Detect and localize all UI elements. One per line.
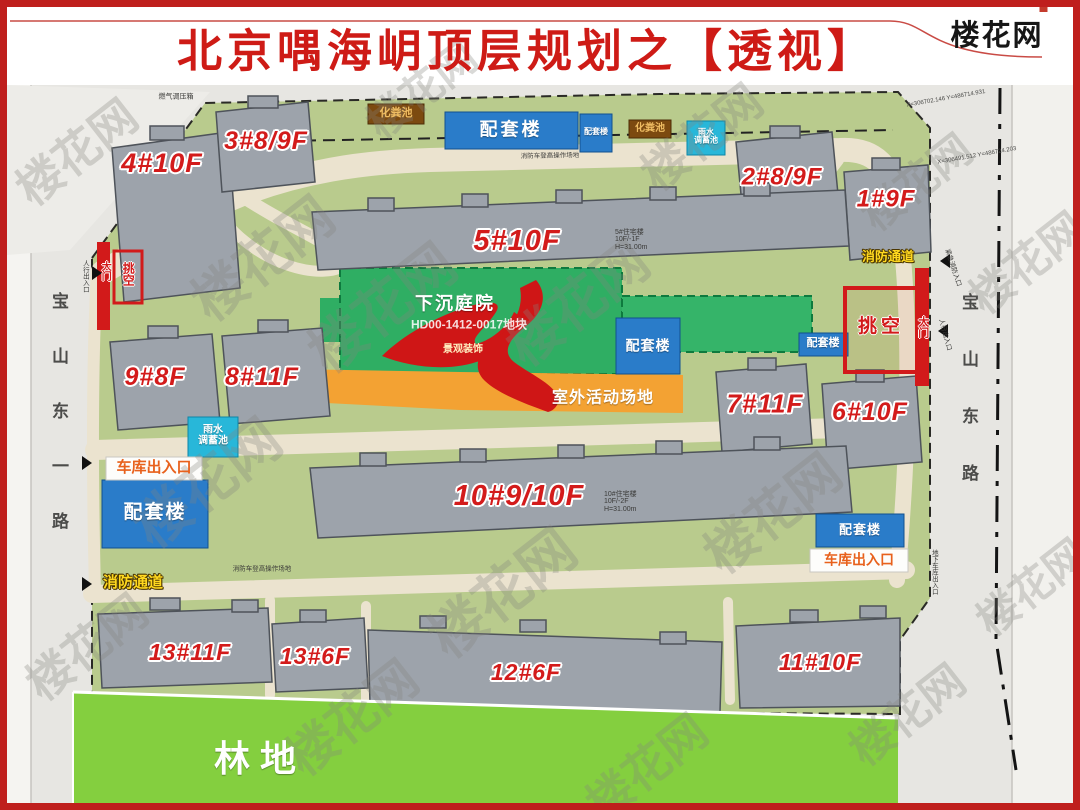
logo-seal-icon [1040, 4, 1048, 12]
site-logo: 楼花网 [950, 12, 1043, 54]
page-title: 北京喁海岄顶层规划之【透视】 [177, 15, 877, 80]
site-logo-text: 楼花网 [950, 18, 1043, 52]
header-rule [0, 0, 1080, 810]
site-plan-frame: 楼花网 楼花网 楼花网 楼花网 楼花网 楼花网 楼花网 楼花网 楼花网 楼花网 … [0, 0, 1080, 810]
site-plan-stage: 楼花网 楼花网 楼花网 楼花网 楼花网 楼花网 楼花网 楼花网 楼花网 楼花网 … [0, 0, 1080, 810]
